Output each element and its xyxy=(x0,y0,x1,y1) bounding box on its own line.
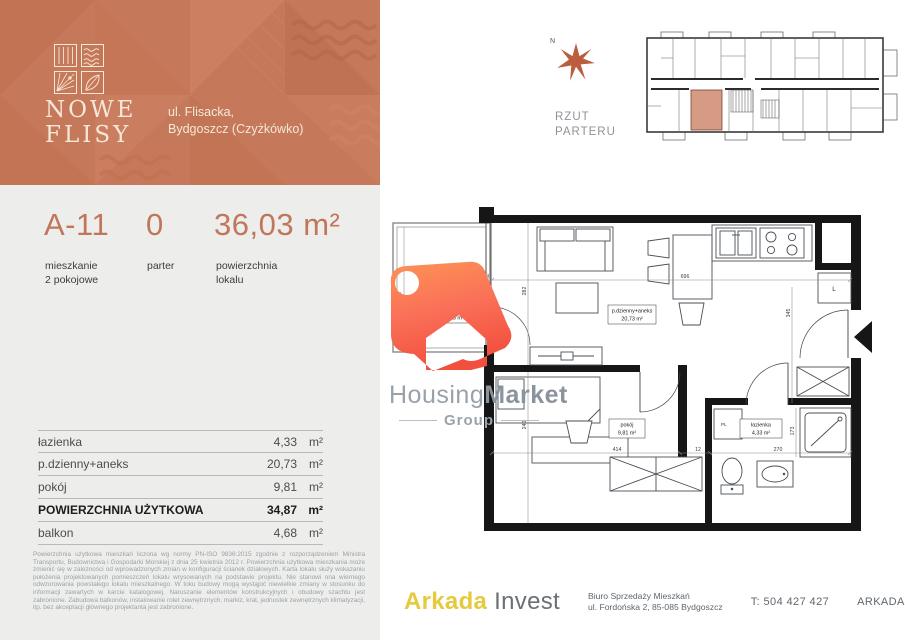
footer-brand-invest: Invest xyxy=(494,588,560,615)
desk-chair xyxy=(566,421,592,443)
svg-text:414: 414 xyxy=(613,447,622,453)
svg-text:270: 270 xyxy=(774,447,783,453)
compass-icon: N xyxy=(556,42,600,86)
unit-area-caption: powierzchnia lokalu xyxy=(216,259,277,287)
table-row: pokój 9,81 m² xyxy=(38,476,323,499)
sales-phone: T: 504 427 427 xyxy=(751,596,829,608)
watermark-market: Market xyxy=(484,381,568,409)
project-address-line1: ul. Flisacka, xyxy=(168,104,303,121)
room-area-unit: m² xyxy=(297,526,323,540)
sales-office-line2: ul. Fordońska 2, 85-085 Bydgoszcz xyxy=(588,602,723,613)
compass-star-icon xyxy=(556,42,596,82)
project-title-line1: NOWE xyxy=(45,98,136,123)
table-row-total: POWIERZCHNIA UŻYTKOWA 34,87 m² xyxy=(38,499,323,522)
svg-text:łazienka: łazienka xyxy=(751,423,771,429)
compass-north-label: N xyxy=(550,38,555,45)
bedroom-door xyxy=(640,372,680,412)
bathroom-door xyxy=(746,363,788,405)
toilet xyxy=(721,458,743,494)
room-area-value: 4,33 xyxy=(253,435,297,449)
room-area-value: 9,81 xyxy=(253,480,297,494)
siteplan-caption-line1: RZUT xyxy=(555,110,616,125)
svg-text:4,33 m²: 4,33 m² xyxy=(752,431,770,437)
sales-office-address: Biuro Sprzedaży Mieszkań ul. Fordońska 2… xyxy=(588,591,723,613)
svg-text:696: 696 xyxy=(681,274,690,280)
svg-text:282: 282 xyxy=(522,287,528,296)
total-area-value: 34,87 xyxy=(253,503,297,517)
tv-sideboard xyxy=(530,347,602,365)
entrance-marker-icon xyxy=(854,321,872,353)
svg-text:pokój: pokój xyxy=(621,423,634,429)
room-area-value: 20,73 xyxy=(253,457,297,471)
sofa xyxy=(537,227,613,271)
svg-text:20,73 m²: 20,73 m² xyxy=(621,317,642,323)
stove-icon xyxy=(760,228,804,258)
fridge-label: L xyxy=(832,286,836,293)
unit-code: A-11 xyxy=(44,207,109,243)
left-panel: NOWE FLISY ul. Flisacka, Bydgoszcz (Czyż… xyxy=(0,0,380,640)
svg-text:345: 345 xyxy=(786,309,792,318)
unit-type-line1: mieszkanie xyxy=(45,259,98,273)
siteplan-caption: RZUT PARTERU xyxy=(555,110,616,140)
washer-label: PL xyxy=(721,422,727,427)
housingmarket-logo-icon xyxy=(381,258,521,374)
kitchen-counter xyxy=(712,225,812,261)
unit-floor: 0 xyxy=(146,207,164,243)
bathroom-label: łazienka 4,33 m² xyxy=(740,419,782,438)
unit-area-caption-line1: powierzchnia xyxy=(216,259,277,273)
unit-type-line2: 2 pokojowe xyxy=(45,273,98,287)
watermark-dash-left xyxy=(399,420,437,421)
footer: Arkada Invest Biuro Sprzedaży Mieszkań u… xyxy=(404,584,904,620)
unit-code-caption: mieszkanie 2 pokojowe xyxy=(45,259,98,287)
website-url: ARKADA-INVEST.PL xyxy=(857,596,905,608)
room-label: balkon xyxy=(38,526,253,540)
table-row: balkon 4,68 m² xyxy=(38,522,323,545)
svg-text:9,81 m²: 9,81 m² xyxy=(618,431,636,437)
nowe-flisy-logo-icon xyxy=(54,44,104,94)
living-room-label: p.dzienny+aneks 20,73 m² xyxy=(608,305,656,324)
project-header: NOWE FLISY ul. Flisacka, Bydgoszcz (Czyż… xyxy=(0,0,380,185)
washing-machine xyxy=(714,409,742,439)
sales-office-line1: Biuro Sprzedaży Mieszkań xyxy=(588,591,723,602)
coffee-table xyxy=(556,283,598,313)
arkada-invest-logo: Arkada Invest xyxy=(404,588,560,616)
room-area-unit: m² xyxy=(297,457,323,471)
svg-text:p.dzienny+aneks: p.dzienny+aneks xyxy=(612,309,653,315)
svg-text:173: 173 xyxy=(790,427,796,436)
entrance-door xyxy=(800,310,848,358)
watermark-housing: Housing xyxy=(389,381,484,409)
apartment-card: NOWE FLISY ul. Flisacka, Bydgoszcz (Czyż… xyxy=(0,0,905,640)
svg-text:12: 12 xyxy=(695,447,701,453)
highlighted-unit xyxy=(691,90,722,130)
room-area-unit: m² xyxy=(297,480,323,494)
project-title-line2: FLISY xyxy=(45,123,136,148)
unit-area-caption-line2: lokalu xyxy=(216,273,277,287)
logo-square-waves-icon xyxy=(81,44,104,67)
room-area-value: 4,68 xyxy=(253,526,297,540)
project-title: NOWE FLISY xyxy=(45,98,136,148)
total-label: POWIERZCHNIA UŻYTKOWA xyxy=(38,503,253,517)
hall-wardrobe xyxy=(797,367,849,396)
room-label: łazienka xyxy=(38,435,253,449)
table-row: łazienka 4,33 m² xyxy=(38,430,323,453)
logo-square-rays-icon xyxy=(54,71,77,94)
bedroom-label: pokój 9,81 m² xyxy=(609,419,645,438)
footer-brand-arkada: Arkada xyxy=(404,588,487,615)
siteplan-caption-line2: PARTERU xyxy=(555,125,616,140)
watermark-group: Group xyxy=(444,412,494,429)
logo-square-lines-icon xyxy=(54,44,77,67)
room-label: p.dzienny+aneks xyxy=(38,457,253,471)
project-address: ul. Flisacka, Bydgoszcz (Czyżkówko) xyxy=(168,104,303,138)
washbasin xyxy=(757,461,793,487)
unit-area: 36,03 m² xyxy=(214,207,340,243)
bedroom-wardrobe xyxy=(610,457,702,491)
logo-square-leaf-icon xyxy=(81,71,104,94)
unit-floor-caption: parter xyxy=(147,259,174,273)
rooms-table: łazienka 4,33 m² p.dzienny+aneks 20,73 m… xyxy=(38,430,323,545)
total-area-unit: m² xyxy=(297,503,323,517)
legal-disclaimer: Powierzchnia użytkowa mieszkań liczona w… xyxy=(33,551,365,612)
table-row: p.dzienny+aneks 20,73 m² xyxy=(38,453,323,476)
project-address-line2: Bydgoszcz (Czyżkówko) xyxy=(168,121,303,138)
building-overview-plan xyxy=(633,28,905,146)
room-label: pokój xyxy=(38,480,253,494)
shower xyxy=(800,408,851,457)
room-area-unit: m² xyxy=(297,435,323,449)
housingmarket-wordmark: HousingMarket Group xyxy=(389,381,559,429)
watermark-dash-right xyxy=(501,420,539,421)
